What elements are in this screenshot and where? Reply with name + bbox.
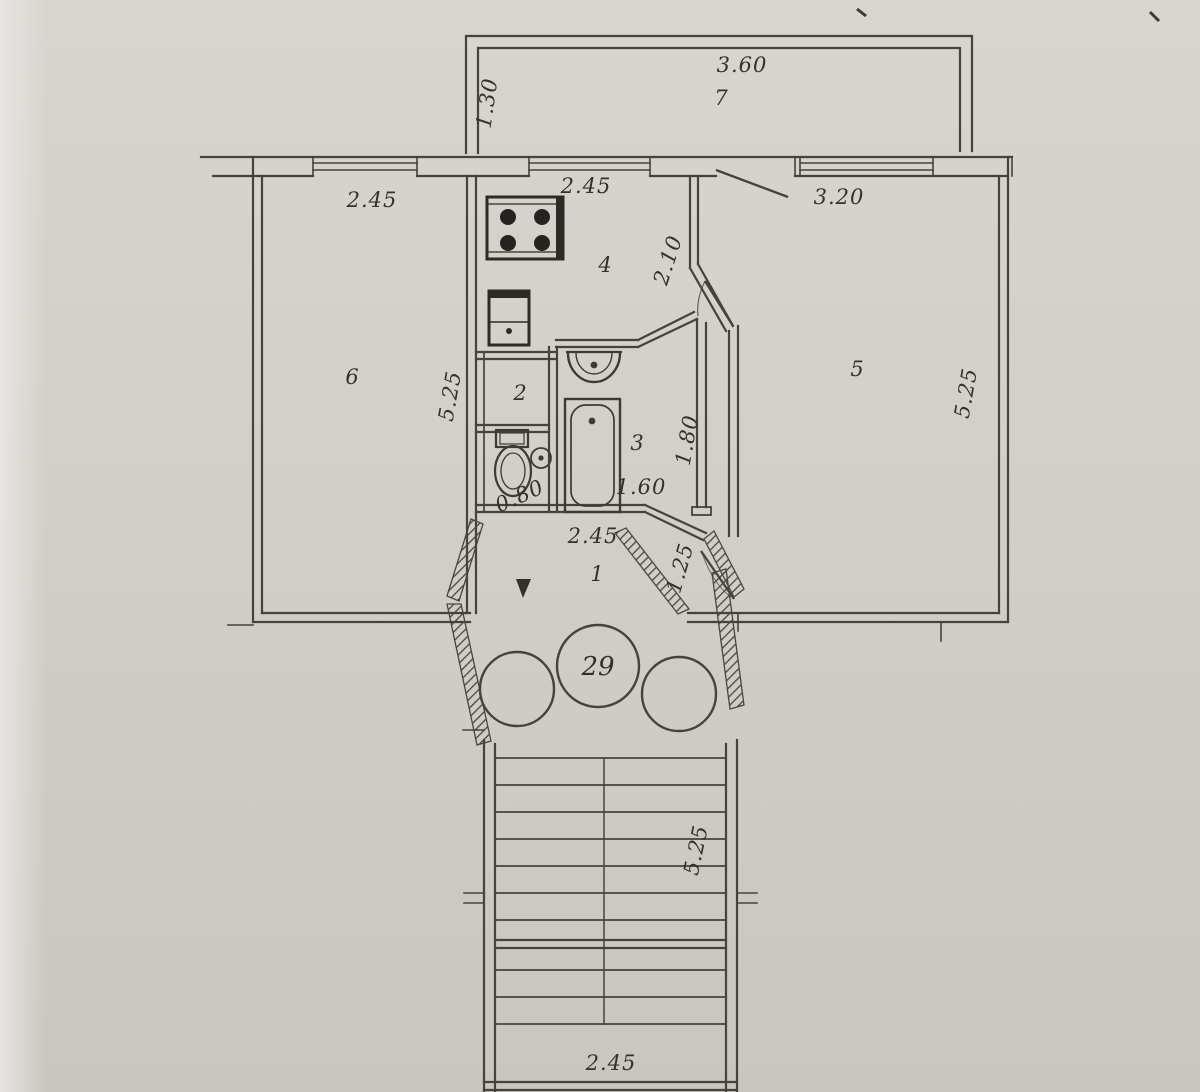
floor-plan-page: 3.60 1.30 2.45 2.45 3.20 2.10 5.25 5.25 … xyxy=(0,0,1200,1092)
room-right-label: 5 xyxy=(850,357,863,381)
balcony-width-dim: 3.60 xyxy=(717,53,768,77)
kitchen-width-dim: 2.45 xyxy=(560,174,612,198)
bathroom-width-dim: 1.60 xyxy=(616,475,667,499)
room-hallway-label: 1 xyxy=(590,562,603,586)
stairwell-width-dim: 2.45 xyxy=(585,1051,637,1075)
apartment-number-label: 29 xyxy=(580,652,614,682)
room-kitchen-label: 4 xyxy=(597,253,611,277)
room-left-label: 6 xyxy=(345,365,358,389)
room-bathroom-label: 3 xyxy=(630,431,643,455)
room-left-width-dim: 2.45 xyxy=(346,188,398,212)
room-right-width-dim: 3.20 xyxy=(814,185,865,209)
floor-plan-image: 3.60 1.30 2.45 2.45 3.20 2.10 5.25 5.25 … xyxy=(0,0,1200,1092)
room-balcony-label: 7 xyxy=(714,86,728,110)
room-pantry-label: 2 xyxy=(512,381,526,405)
hallway-width-dim: 2.45 xyxy=(567,524,619,548)
